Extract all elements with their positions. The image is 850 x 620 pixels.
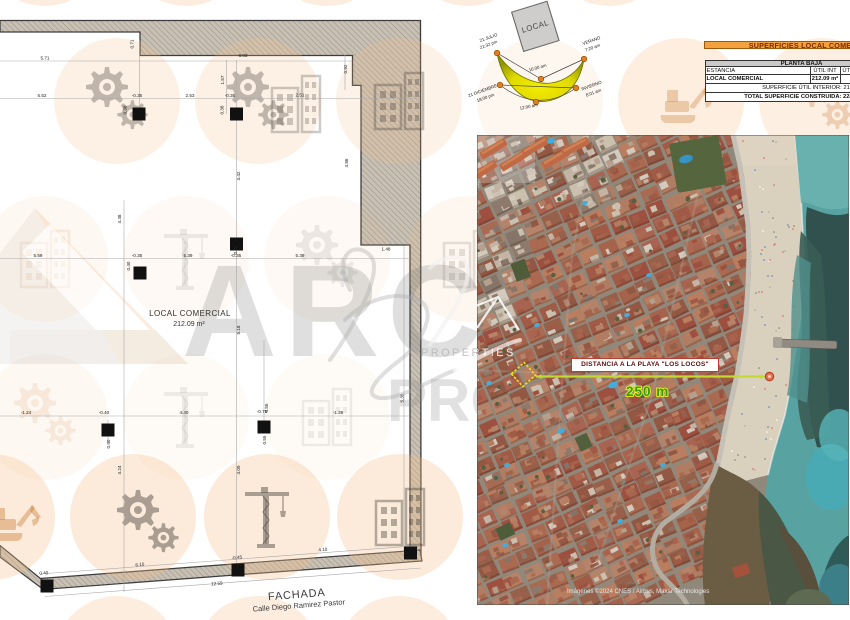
svg-text:250 m: 250 m: [626, 384, 669, 399]
